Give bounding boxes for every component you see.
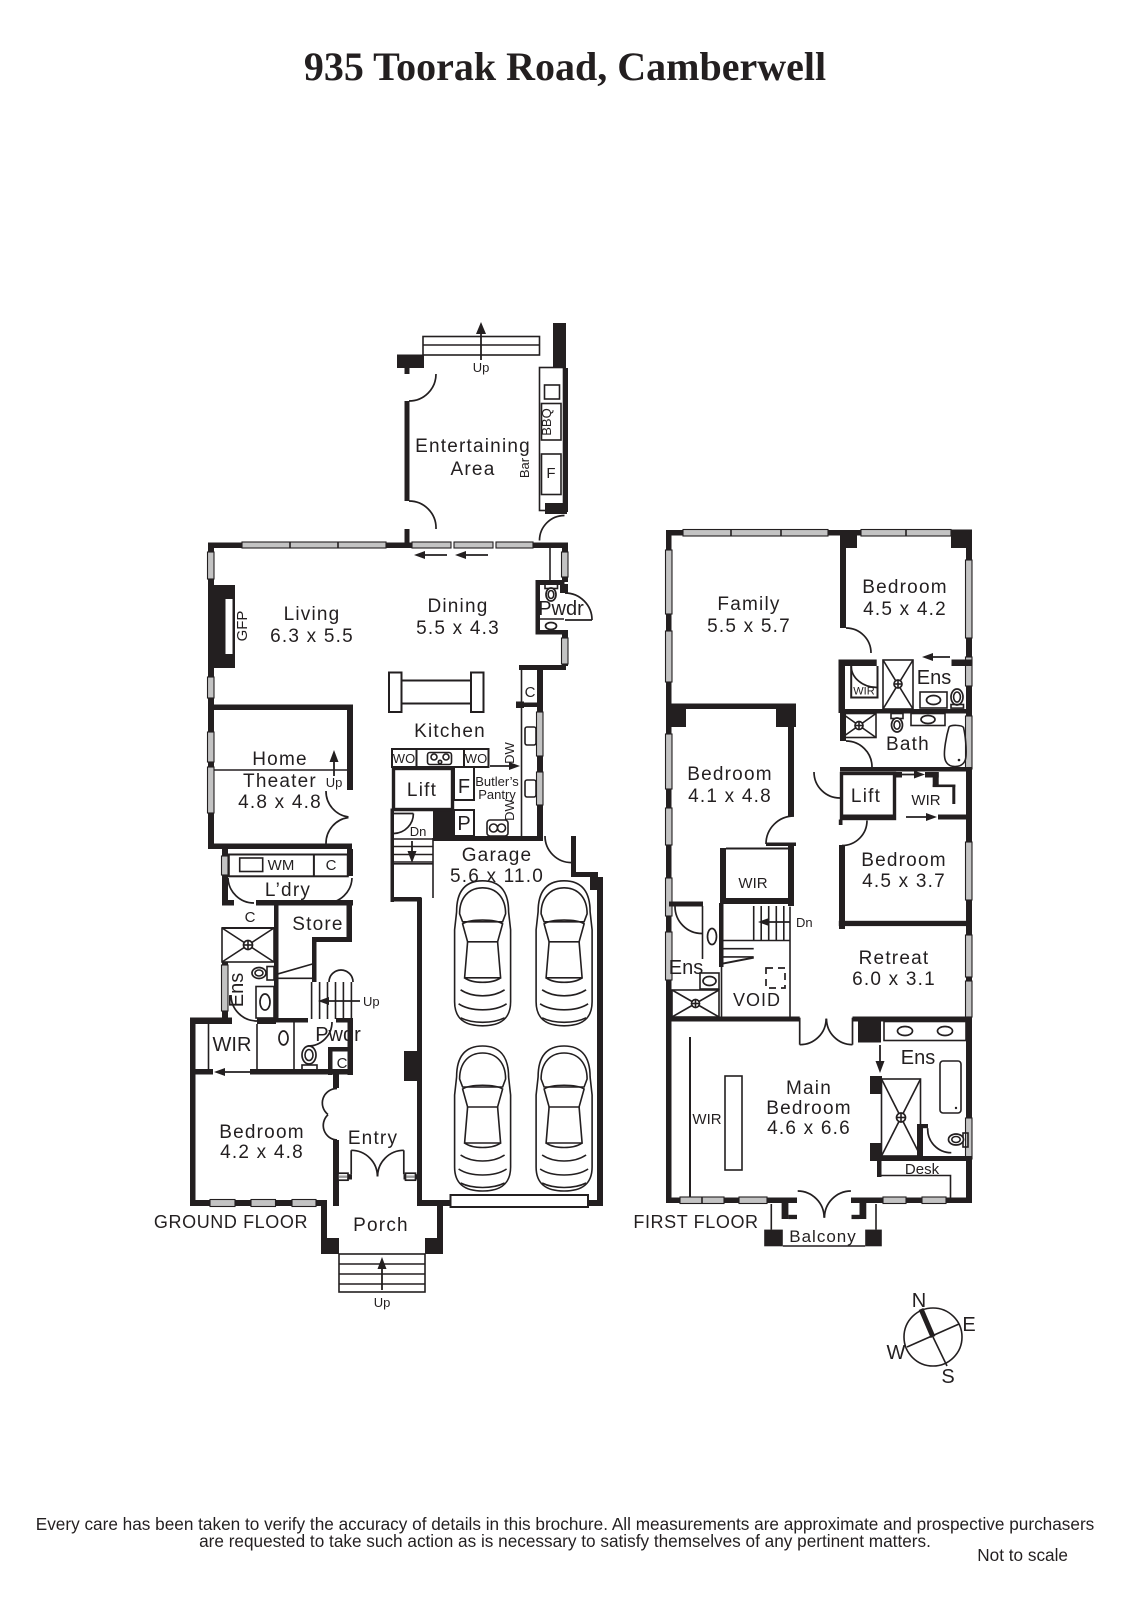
svg-text:Bar: Bar xyxy=(517,457,532,478)
svg-text:GROUND FLOOR: GROUND FLOOR xyxy=(154,1212,308,1232)
svg-text:WIR: WIR xyxy=(853,686,874,698)
svg-text:Up: Up xyxy=(363,994,380,1009)
svg-text:Ens: Ens xyxy=(226,973,248,1007)
svg-text:Porch: Porch xyxy=(353,1215,409,1236)
svg-text:WIR: WIR xyxy=(911,792,940,809)
svg-text:Bath: Bath xyxy=(886,734,930,755)
svg-text:5.5 x 5.7: 5.5 x 5.7 xyxy=(707,616,791,637)
svg-text:Bedroom: Bedroom xyxy=(861,850,947,871)
svg-text:Ens: Ens xyxy=(669,957,703,979)
svg-text:6.3 x 5.5: 6.3 x 5.5 xyxy=(270,626,354,647)
svg-text:4.5 x 4.2: 4.5 x 4.2 xyxy=(863,599,947,620)
svg-text:Dn: Dn xyxy=(796,915,813,930)
svg-text:Ens: Ens xyxy=(917,667,951,689)
svg-text:Not to scale: Not to scale xyxy=(977,1545,1068,1565)
svg-text:Home: Home xyxy=(252,749,307,770)
svg-text:Pwdr: Pwdr xyxy=(315,1024,361,1046)
svg-text:4.5 x 3.7: 4.5 x 3.7 xyxy=(862,871,946,892)
svg-text:Up: Up xyxy=(326,775,343,790)
svg-text:4.1 x 4.8: 4.1 x 4.8 xyxy=(688,786,772,807)
svg-text:GFP: GFP xyxy=(234,611,251,642)
svg-text:L’dry: L’dry xyxy=(265,880,311,901)
svg-text:C: C xyxy=(525,684,536,701)
svg-text:WIR: WIR xyxy=(213,1034,252,1056)
svg-text:Entertaining: Entertaining xyxy=(415,436,531,457)
svg-text:DW: DW xyxy=(502,798,517,820)
svg-text:BBQ: BBQ xyxy=(539,408,554,435)
svg-text:Family: Family xyxy=(717,594,780,615)
svg-text:Bedroom: Bedroom xyxy=(219,1122,305,1143)
svg-text:N: N xyxy=(912,1290,926,1312)
svg-text:Bedroom: Bedroom xyxy=(862,577,948,598)
svg-text:Pwdr: Pwdr xyxy=(538,598,584,620)
svg-text:Theater: Theater xyxy=(243,771,317,792)
svg-text:Area: Area xyxy=(451,459,496,480)
svg-text:Up: Up xyxy=(374,1295,391,1310)
svg-text:4.6 x 6.6: 4.6 x 6.6 xyxy=(767,1118,851,1139)
svg-text:Dining: Dining xyxy=(427,596,488,617)
svg-text:Dn: Dn xyxy=(410,824,427,839)
svg-text:4.8 x 4.8: 4.8 x 4.8 xyxy=(238,792,322,813)
svg-text:Retreat: Retreat xyxy=(859,948,930,969)
svg-text:DW: DW xyxy=(502,741,517,763)
svg-text:Main: Main xyxy=(786,1078,832,1099)
svg-text:C: C xyxy=(245,909,256,926)
svg-text:Ens: Ens xyxy=(901,1047,935,1069)
svg-text:Bedroom: Bedroom xyxy=(687,764,773,785)
svg-text:Garage: Garage xyxy=(462,845,533,866)
svg-text:Living: Living xyxy=(284,604,341,625)
svg-text:Lift: Lift xyxy=(851,786,881,807)
svg-text:WIR: WIR xyxy=(692,1111,721,1128)
svg-text:C: C xyxy=(326,857,337,874)
svg-text:are requested to take such act: are requested to take such action as is … xyxy=(199,1531,931,1551)
svg-text:Balcony: Balcony xyxy=(789,1227,856,1246)
svg-text:Lift: Lift xyxy=(407,780,437,801)
svg-text:WIR: WIR xyxy=(738,875,767,892)
svg-text:5.5 x 4.3: 5.5 x 4.3 xyxy=(416,618,500,639)
svg-text:FIRST FLOOR: FIRST FLOOR xyxy=(633,1212,758,1232)
svg-text:6.0 x 3.1: 6.0 x 3.1 xyxy=(852,969,936,990)
svg-text:WM: WM xyxy=(268,857,295,874)
svg-text:W: W xyxy=(887,1342,906,1364)
svg-text:Entry: Entry xyxy=(348,1128,398,1149)
svg-text:P: P xyxy=(457,813,470,835)
svg-text:VOID: VOID xyxy=(733,990,781,1010)
svg-text:WO: WO xyxy=(465,751,487,766)
svg-text:Kitchen: Kitchen xyxy=(414,721,486,742)
svg-text:E: E xyxy=(962,1314,975,1336)
svg-text:F: F xyxy=(546,465,555,482)
svg-text:Up: Up xyxy=(473,360,490,375)
svg-text:F: F xyxy=(458,776,470,798)
svg-text:Store: Store xyxy=(292,914,343,935)
svg-text:WO: WO xyxy=(393,751,415,766)
svg-text:4.2 x 4.8: 4.2 x 4.8 xyxy=(220,1142,304,1163)
svg-text:S: S xyxy=(941,1366,954,1388)
svg-text:935 Toorak Road, Camberwell: 935 Toorak Road, Camberwell xyxy=(304,44,826,89)
svg-text:Bedroom: Bedroom xyxy=(766,1098,852,1119)
